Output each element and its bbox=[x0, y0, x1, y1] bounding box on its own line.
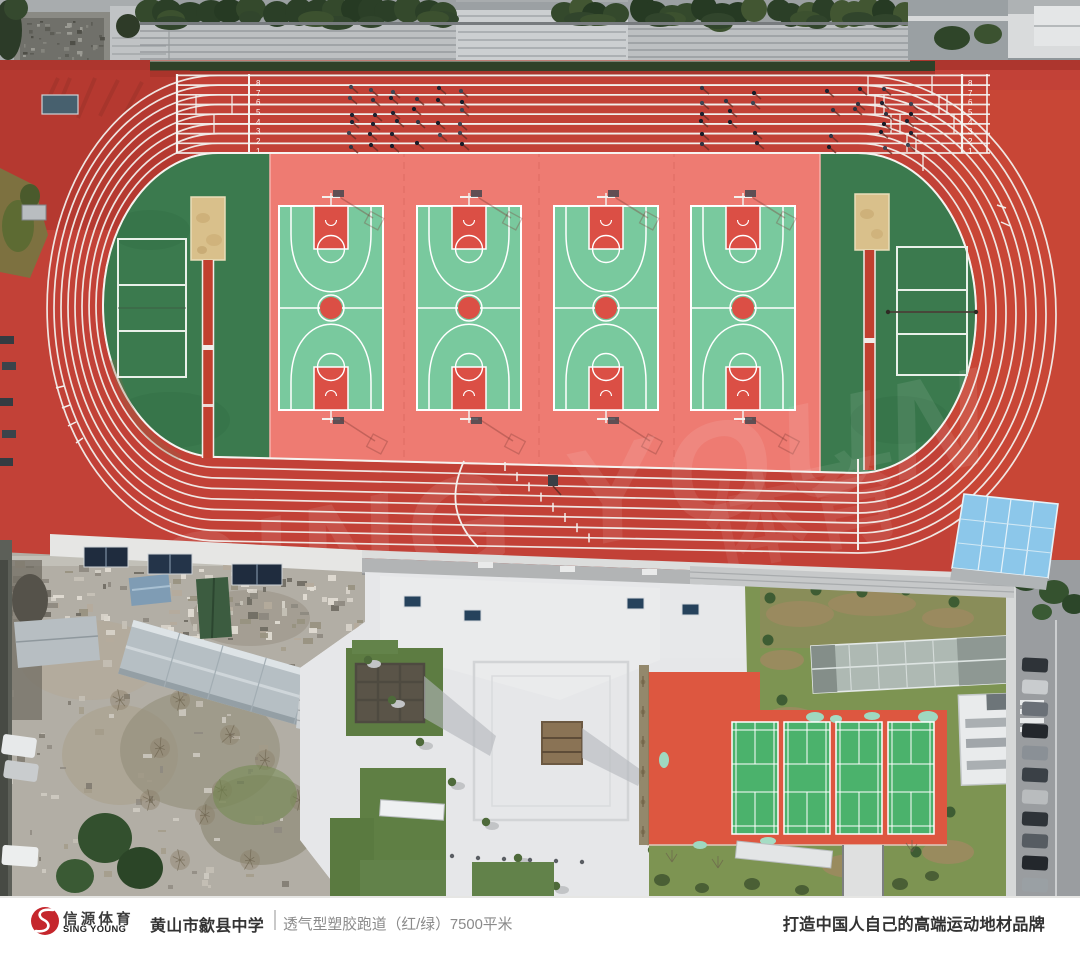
svg-text:2: 2 bbox=[968, 137, 973, 146]
svg-text:3: 3 bbox=[968, 127, 973, 136]
svg-text:7: 7 bbox=[256, 89, 261, 98]
svg-text:5: 5 bbox=[256, 108, 261, 117]
svg-text:5: 5 bbox=[968, 108, 973, 117]
svg-text:8: 8 bbox=[256, 79, 261, 88]
svg-text:2: 2 bbox=[256, 137, 261, 146]
svg-text:6: 6 bbox=[968, 98, 973, 107]
svg-text:4: 4 bbox=[968, 118, 973, 127]
svg-text:1: 1 bbox=[968, 147, 973, 156]
svg-text:7: 7 bbox=[968, 89, 973, 98]
svg-text:6: 6 bbox=[256, 98, 261, 107]
svg-text:3: 3 bbox=[256, 127, 261, 136]
svg-text:8: 8 bbox=[968, 79, 973, 88]
svg-text:4: 4 bbox=[256, 118, 261, 127]
